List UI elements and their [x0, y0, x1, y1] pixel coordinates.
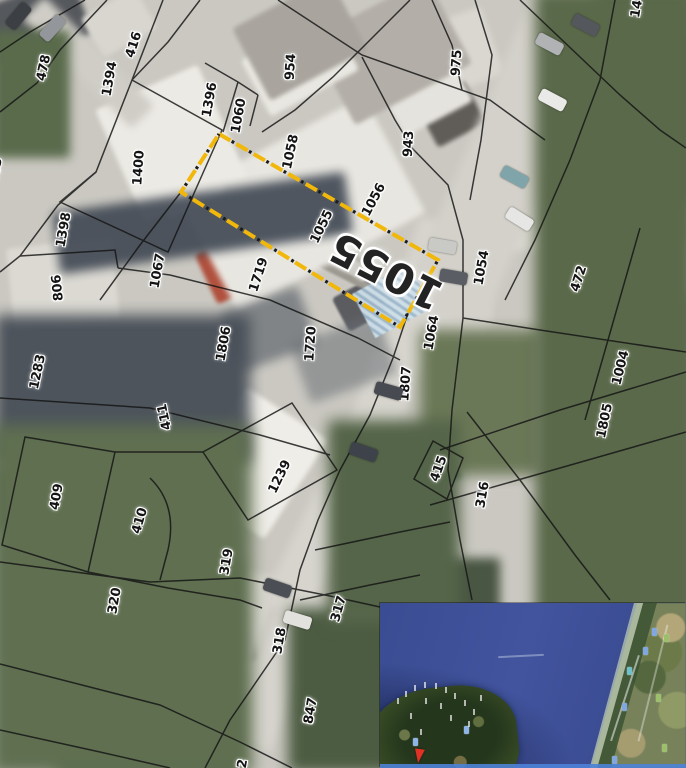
road-shield-marker — [627, 667, 632, 675]
boundary-line — [60, 80, 222, 252]
boundary-line — [250, 95, 258, 126]
boundary-line — [0, 664, 292, 768]
place-label-speck — [405, 691, 407, 697]
boundary-line — [362, 57, 463, 318]
road-shield-marker — [612, 756, 617, 764]
boundary-line — [432, 0, 462, 90]
boundary-line — [2, 437, 115, 572]
place-label-speck — [450, 715, 452, 721]
place-label-speck — [473, 709, 475, 715]
location-inset-map — [380, 603, 686, 768]
boundary-line — [223, 82, 238, 132]
place-label-speck — [480, 695, 482, 701]
boundary-line — [0, 0, 163, 272]
boundary-line — [440, 372, 686, 450]
inset-bottom-border — [380, 764, 686, 768]
place-label-speck — [454, 693, 456, 699]
boundary-line — [0, 398, 330, 455]
place-label-speck — [397, 698, 399, 704]
boundary-line — [278, 0, 545, 140]
boundary-line — [463, 318, 686, 352]
boundary-line — [203, 403, 337, 520]
boundary-line — [0, 0, 107, 112]
boundary-line — [132, 0, 200, 80]
boundary-line — [505, 0, 615, 300]
place-label-speck — [425, 698, 427, 704]
boundary-line — [414, 441, 463, 499]
road-shield-marker — [622, 703, 627, 711]
boundary-line — [0, 730, 170, 768]
boundary-line — [20, 250, 118, 268]
road-shield-marker — [464, 726, 469, 734]
boundary-line — [118, 268, 170, 275]
location-pin-icon — [413, 748, 425, 763]
road-shield-marker — [643, 647, 648, 655]
boundary-line — [430, 432, 686, 505]
road-shield-marker — [656, 694, 661, 702]
boundary-line — [0, 0, 85, 52]
place-label-speck — [468, 721, 470, 727]
boundary-line — [467, 412, 610, 600]
boundary-line — [0, 562, 380, 607]
boundary-line — [315, 522, 450, 550]
cadastral-aerial-map: 4034784161394954975141396106010589431400… — [0, 0, 686, 768]
boundary-line — [205, 313, 408, 768]
boundary-line — [262, 0, 410, 132]
road-shield-marker — [413, 738, 418, 746]
place-label-speck — [414, 685, 416, 691]
road-shield-marker — [662, 744, 667, 752]
boundary-line — [150, 478, 171, 580]
place-label-speck — [440, 703, 442, 709]
highlighted-parcel-outline-dots — [181, 134, 438, 327]
place-label-speck — [420, 729, 422, 735]
place-label-speck — [445, 687, 447, 693]
place-label-speck — [424, 682, 426, 688]
boundary-line — [300, 575, 420, 600]
highlighted-parcel-outline — [181, 134, 438, 327]
boundary-line — [100, 192, 181, 300]
road-shield-marker — [652, 628, 657, 636]
boundary-line — [585, 228, 640, 420]
place-label-speck — [435, 683, 437, 689]
boundary-line — [170, 275, 400, 360]
road-shield-marker — [664, 634, 669, 642]
boundary-line — [448, 318, 472, 600]
place-label-speck — [464, 700, 466, 706]
place-label-speck — [410, 713, 412, 719]
boundary-line — [520, 0, 686, 148]
boundary-line — [205, 63, 258, 95]
